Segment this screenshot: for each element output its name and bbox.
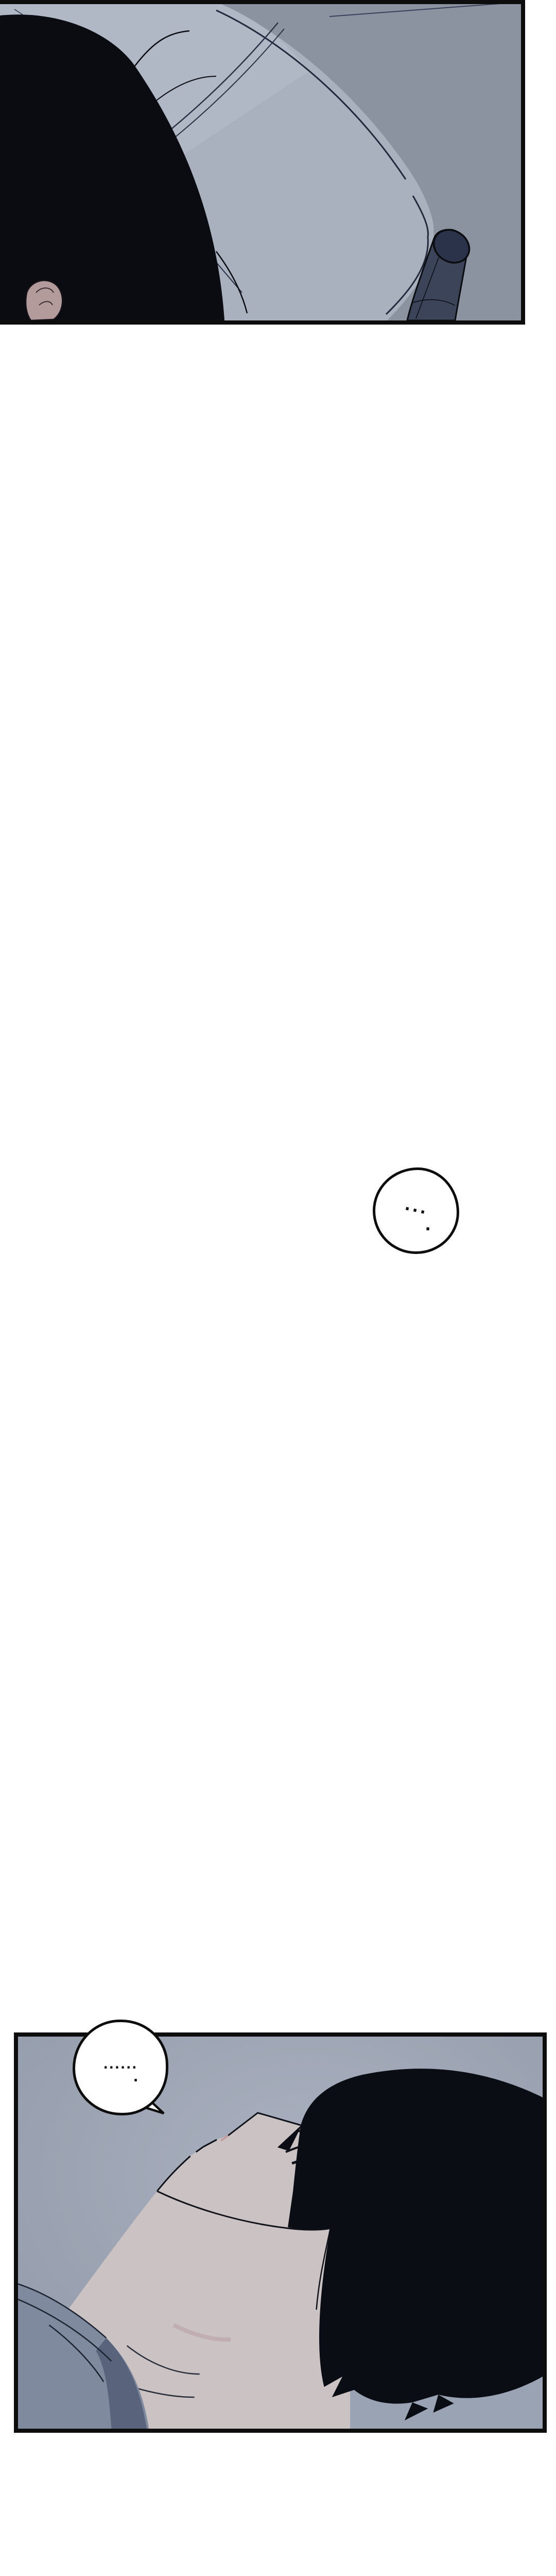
bubble-1-dots: ···: [368, 1162, 464, 1259]
webtoon-strip: ··· . ······ . ···!! Bật dậy !: [0, 0, 556, 2576]
ear: [26, 280, 62, 320]
bubble-2-dots: ······: [75, 2022, 166, 2113]
panel-1-sleeping: [0, 0, 525, 325]
speech-bubble-ellipsis-1: ··· .: [373, 1167, 459, 1254]
panel-1-artwork: [0, 4, 521, 320]
speech-bubble-ellipsis-2: ······ .: [73, 2020, 168, 2115]
bubble-1-period: .: [425, 1216, 430, 1234]
bubble-2-period: .: [133, 2070, 138, 2085]
